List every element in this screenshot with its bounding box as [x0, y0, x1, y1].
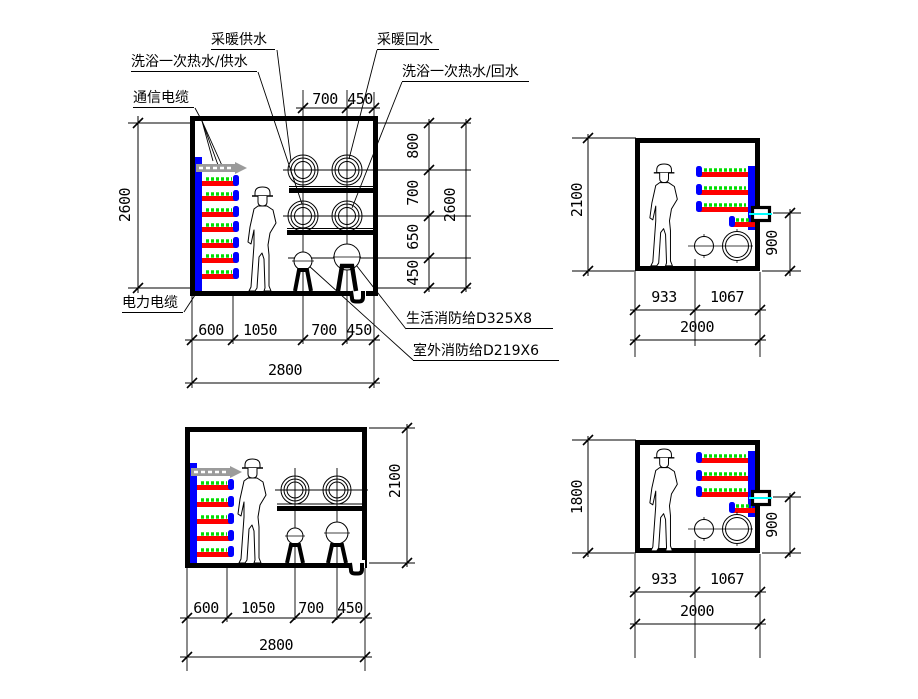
- label-outdoor-fire-main: 室外消防给D219X6: [413, 343, 559, 361]
- label-bath-hot-water-return: 洗浴一次热水/回水: [402, 64, 529, 82]
- cable-tray-c: [190, 463, 234, 563]
- dim-b-bottom-total-2000: 2000: [680, 318, 714, 336]
- cad-drawing-canvas: 采暖供水 采暖回水 洗浴一次热水/供水 洗浴一次热水/回水 通信电缆 电力电缆 …: [0, 0, 918, 699]
- comm-cable-arrow-icon-c: [191, 466, 242, 478]
- label-domestic-fire-main: 生活消防给D325X8: [406, 311, 553, 329]
- dim-d-bottom-1067: 1067: [710, 570, 744, 588]
- dim-b-right-900: 900: [763, 230, 781, 256]
- dim-a-left-total-2600: 2600: [116, 188, 134, 222]
- conduit-box-d: [749, 492, 772, 505]
- conduit-box-b: [749, 208, 772, 221]
- worker-b: [650, 164, 677, 266]
- dim-c-bottom-700: 700: [298, 599, 324, 617]
- pipes-d: [688, 512, 753, 546]
- dim-a-bottom-450: 450: [346, 321, 372, 339]
- dim-a-bottom-1050: 1050: [243, 321, 277, 339]
- label-bath-hot-water-supply: 洗浴一次热水/供水: [131, 54, 257, 72]
- dim-a-top-700: 700: [312, 90, 338, 108]
- dim-d-left-total-1800: 1800: [568, 480, 586, 514]
- dim-b-left-total-2100: 2100: [568, 183, 586, 217]
- dim-d-bottom-total-2000: 2000: [680, 602, 714, 620]
- cable-tray-d: [696, 451, 755, 517]
- label-power-cable: 电力电缆: [122, 295, 183, 313]
- dim-c-bottom-600: 600: [193, 599, 219, 617]
- cable-tray-a: [195, 157, 239, 291]
- label-heating-supply: 采暖供水: [211, 32, 275, 50]
- dim-a-bottom-total-2800: 2800: [268, 361, 302, 379]
- dim-b-bottom-1067: 1067: [710, 288, 744, 306]
- dim-c-bottom-total-2800: 2800: [259, 636, 293, 654]
- worker-d: [650, 449, 677, 551]
- dim-c-bottom-1050: 1050: [241, 599, 275, 617]
- dim-a-bottom-700: 700: [311, 321, 337, 339]
- dim-c-bottom-450: 450: [337, 599, 363, 617]
- section-d: [572, 435, 801, 658]
- dim-a-right-700: 700: [404, 180, 422, 206]
- dim-c-right-total-2100: 2100: [386, 464, 404, 498]
- dim-a-right-450: 450: [404, 260, 422, 286]
- section-c: [180, 423, 415, 671]
- dim-a-right-total-2600: 2600: [441, 188, 459, 222]
- fire-mains-a: [292, 244, 361, 291]
- label-communication-cable: 通信电缆: [133, 90, 194, 108]
- cable-tray-b: [696, 166, 755, 230]
- dim-a-right-800: 800: [404, 133, 422, 159]
- label-heating-return: 采暖回水: [377, 32, 439, 50]
- worker-a: [248, 187, 276, 291]
- dim-d-bottom-933: 933: [651, 570, 677, 588]
- dim-a-right-650: 650: [404, 224, 422, 250]
- pipes-b: [688, 229, 753, 263]
- dim-d-right-900: 900: [763, 512, 781, 538]
- pipe-shelf-c: [277, 504, 364, 511]
- dim-a-top-450: 450: [347, 90, 373, 108]
- dim-a-bottom-600: 600: [198, 321, 224, 339]
- worker-c: [238, 459, 266, 563]
- dim-b-bottom-933: 933: [651, 288, 677, 306]
- drain-notch-c: [349, 560, 365, 574]
